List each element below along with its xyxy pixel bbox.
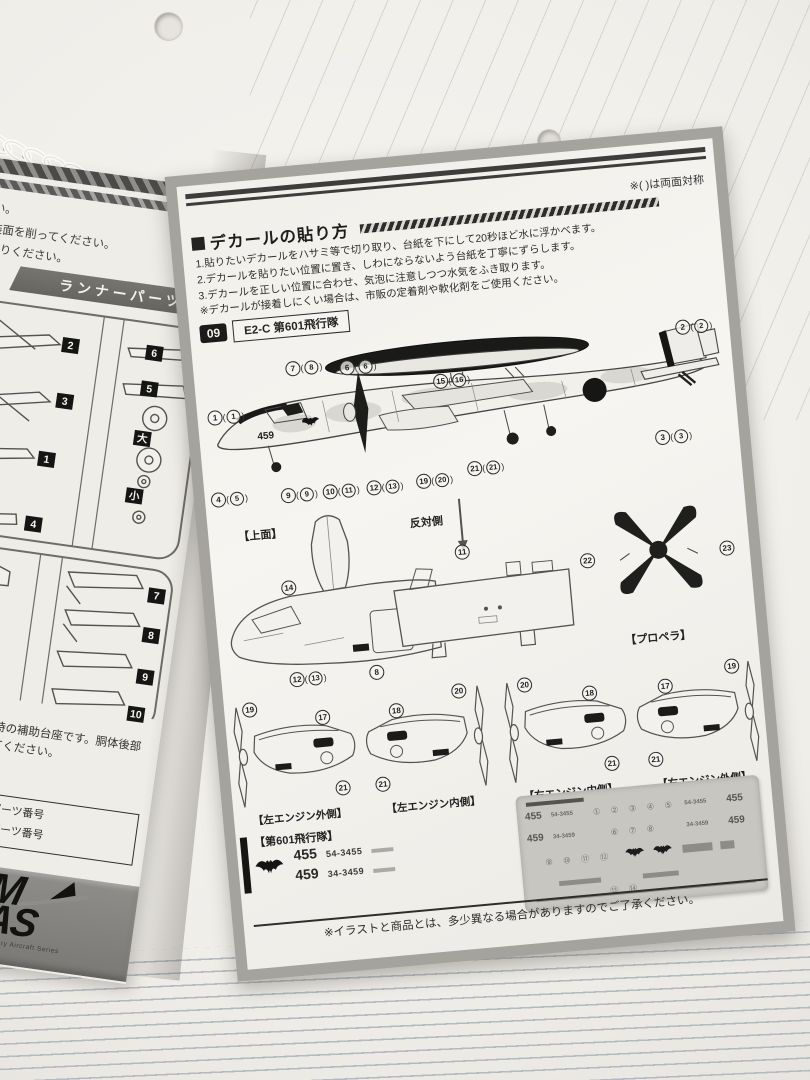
serial: 34-3459	[327, 866, 364, 879]
bat-emblem-icon	[254, 856, 286, 877]
brand-logo-strip: F M AS Military Aircraft Series	[0, 845, 139, 982]
propeller-figure: 【プロペラ】 2223	[573, 474, 746, 666]
part-number-tag: 10	[126, 706, 145, 723]
decal-serial: 54-3455	[551, 811, 573, 819]
part-number-tag: 1	[37, 451, 56, 468]
engine-view-left-outer: 【左エンジン外側】 191721	[226, 693, 365, 832]
callout: 8	[369, 664, 385, 680]
decal-strip	[559, 877, 601, 886]
section-square-icon	[191, 236, 205, 250]
callout: 12(13)	[289, 669, 327, 687]
decal-modex: 455	[525, 811, 543, 823]
engine-view-right-outer: 【右エンジン外側】 171921	[630, 656, 769, 795]
decal-strip	[643, 870, 679, 878]
sheet-content: ※( )は両面対称 デカールの貼り方 1.貼りたいデカールをハサミ等で切り取り、…	[176, 138, 783, 970]
decal-serial: 34-3459	[553, 833, 575, 841]
callout: 17	[315, 709, 331, 725]
propeller-label: 【プロペラ】	[625, 626, 692, 648]
decal-serial: 54-3455	[684, 799, 706, 807]
decal-strip	[720, 840, 735, 849]
decal-modex: 459	[728, 814, 746, 826]
opposite-side-label: 反対側	[409, 512, 443, 531]
callout: 21	[604, 755, 620, 771]
footer-disclaimer: ※イラストと商品とは、多少異なる場合がありますのでご了承ください。	[244, 883, 779, 948]
modex: 459	[295, 865, 320, 883]
callout: 11	[454, 544, 470, 560]
decal-strip	[682, 842, 713, 853]
punch-hole	[155, 13, 182, 40]
nose-modex: 459	[257, 430, 275, 443]
decal-serial: 34-3459	[686, 820, 708, 828]
top-view-label: 【上面】	[238, 525, 283, 545]
squadron-rows: 455 54-3455 459 34-3459	[293, 838, 396, 887]
variant-number-badge: 09	[199, 323, 228, 343]
part-number-tag: 8	[142, 627, 161, 644]
part-number-tag: 大	[133, 430, 152, 447]
propeller-drawing	[588, 479, 729, 620]
decal-numbers: ⑨ ⑩ ⑪ ⑫	[545, 850, 613, 868]
callout: 20	[516, 677, 532, 693]
part-number-tag: 2	[61, 337, 80, 354]
decal-modex: 459	[527, 832, 545, 844]
mid-detail-figures: 【上面】 反対側	[213, 488, 588, 698]
photo-of-instruction-sheet: さい。 塗装面を削ってください。 お送りください。 ランナーパーツ	[0, 0, 810, 1080]
illegible-microtext	[371, 847, 393, 853]
decal-instruction-sheet: ※( )は両面対称 デカールの貼り方 1.貼りたいデカールをハサミ等で切り取り、…	[165, 126, 796, 981]
decal-numbers: ⑥ ⑦ ⑧	[610, 823, 658, 838]
mas-logo-as: AS	[0, 898, 40, 944]
engine-view-right-inner: 【右エンジン内側】 201821	[496, 668, 635, 807]
callout: 19	[724, 658, 740, 674]
callout: 18	[581, 685, 597, 701]
bat-decal-icon	[652, 843, 673, 857]
engine-view-left-inner: 【左エンジン内側】 182021	[359, 681, 498, 820]
part-number-tag: 4	[24, 516, 43, 533]
callout: 21	[648, 751, 664, 767]
part-number-tag: 小	[125, 487, 144, 504]
callout: 14	[281, 580, 297, 596]
callout: 19	[242, 702, 258, 718]
modex: 455	[293, 845, 318, 863]
decal-numbers: ① ② ③ ④ ⑤	[592, 799, 676, 818]
serial: 54-3455	[325, 846, 362, 859]
illegible-microtext	[373, 867, 395, 873]
callout: 21	[335, 780, 351, 796]
landing-support-note: 着陸状態時の補助台座です。胴体後部に配置してください。	[0, 713, 148, 776]
decal-sheet-title-bar	[526, 798, 584, 807]
callout: 21	[375, 776, 391, 792]
part-number-tag: 3	[55, 393, 74, 410]
bat-decal-icon	[624, 845, 645, 859]
black-bar	[240, 837, 252, 893]
callout: 18	[388, 703, 404, 719]
decal-modex: 455	[726, 792, 744, 804]
opposite-side-drawing	[385, 544, 584, 665]
part-number-tag: 5	[140, 380, 159, 397]
parts-legend-box: 状態で使用するパーツ番号 状態で使用するパーツ番号	[0, 779, 139, 865]
callout: 23	[719, 540, 735, 556]
callout: 22	[579, 553, 595, 569]
callout: 17	[657, 678, 673, 694]
part-number-tag: 9	[136, 669, 155, 686]
part-number-tag: 6	[145, 345, 164, 362]
callout: 20	[451, 683, 467, 699]
